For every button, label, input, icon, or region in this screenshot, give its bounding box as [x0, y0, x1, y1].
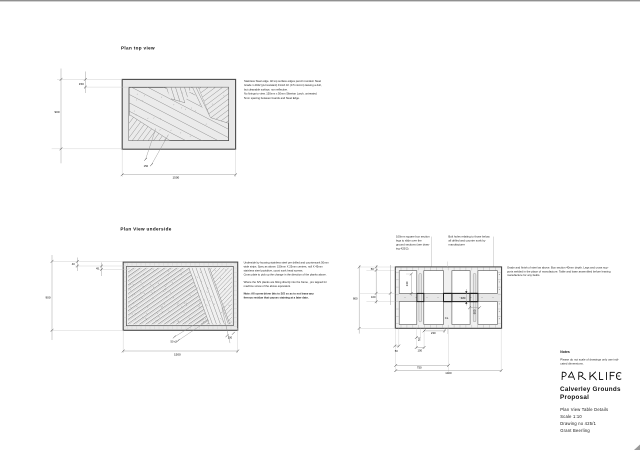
svg-text:50: 50: [395, 349, 398, 353]
svg-text:CL: CL: [445, 316, 449, 320]
svg-text:Proposal: Proposal: [560, 394, 589, 401]
svg-text:900: 900: [46, 296, 51, 300]
svg-text:Plan View Table Details: Plan View Table Details: [560, 407, 608, 412]
svg-text:ferrous residue that causes st: ferrous residue that causes staining at …: [244, 295, 309, 299]
svg-text:50 x2: 50 x2: [171, 340, 178, 344]
svg-text:40: 40: [72, 262, 75, 266]
svg-text:100: 100: [371, 295, 376, 299]
svg-text:150: 150: [144, 164, 149, 168]
svg-text:Plan top view: Plan top view: [121, 45, 155, 50]
svg-text:Underside by housing stainless: Underside by housing stainless steel pre…: [244, 261, 330, 265]
svg-text:manufacture for any faults.: manufacture for any faults.: [507, 273, 540, 277]
svg-text:wide strips. Spec as above. 15: wide strips. Spec as above. 150mm X 25mm…: [244, 264, 324, 268]
svg-text:150: 150: [79, 82, 84, 86]
svg-text:stainless steel pozidrive, cou: stainless steel pozidrive, count sunk he…: [244, 268, 304, 272]
svg-text:Note: All screw driver bits to: Note: All screw driver bits to S/S so as…: [244, 291, 315, 295]
svg-text:1500: 1500: [173, 176, 180, 180]
svg-text:Where the S/S planks are fitti: Where the S/S planks are fitting directl…: [244, 280, 327, 284]
svg-text:100: 100: [228, 336, 233, 340]
svg-text:480: 480: [461, 296, 466, 300]
svg-text:Stainless Steel edge. All top: Stainless Steel edge. All top surface ed…: [244, 79, 321, 83]
svg-text:45: 45: [96, 267, 99, 271]
svg-text:1500: 1500: [174, 352, 181, 356]
svg-text:machine screw of the above equ: machine screw of the above equivalent.: [244, 284, 291, 288]
svg-text:340: 340: [405, 281, 409, 286]
svg-text:cated dimensions.: cated dimensions.: [560, 362, 583, 366]
svg-text:ing 425/2).: ing 425/2).: [396, 246, 409, 250]
svg-text:Cross plate to pick up the cha: Cross plate to pick up the change in the…: [244, 272, 327, 276]
svg-text:5mm spacing between boards and: 5mm spacing between boards and Steel Edg…: [244, 96, 300, 100]
svg-text:but cleanable surface, non ref: but cleanable surface, non reflective.: [244, 87, 288, 91]
svg-text:Notes: Notes: [560, 350, 570, 354]
svg-text:No fixings to view. 150mm x 50: No fixings to view. 150mm x 50mm Siberia…: [244, 92, 317, 96]
svg-text:230: 230: [431, 331, 436, 335]
svg-text:1400: 1400: [445, 371, 452, 375]
svg-text:Grade 1.4042 (pH resistant) Fi: Grade 1.4042 (pH resistant) Finish 1K (0…: [244, 83, 322, 87]
svg-text:Grant Beerling: Grant Beerling: [560, 428, 590, 433]
svg-text:900: 900: [55, 110, 60, 114]
svg-text:750: 750: [417, 366, 422, 370]
svg-text:manufacturer: manufacturer: [448, 242, 465, 246]
svg-text:Plan View underside: Plan View underside: [120, 227, 171, 232]
svg-text:100: 100: [418, 349, 423, 353]
svg-text:Drawing no 425/1: Drawing no 425/1: [560, 421, 596, 426]
svg-text:800: 800: [353, 297, 358, 301]
svg-text:50: 50: [371, 267, 374, 271]
svg-text:600: 600: [473, 309, 477, 314]
svg-text:Calverley Grounds: Calverley Grounds: [560, 386, 621, 393]
svg-text:Scale 1:10: Scale 1:10: [560, 414, 582, 419]
